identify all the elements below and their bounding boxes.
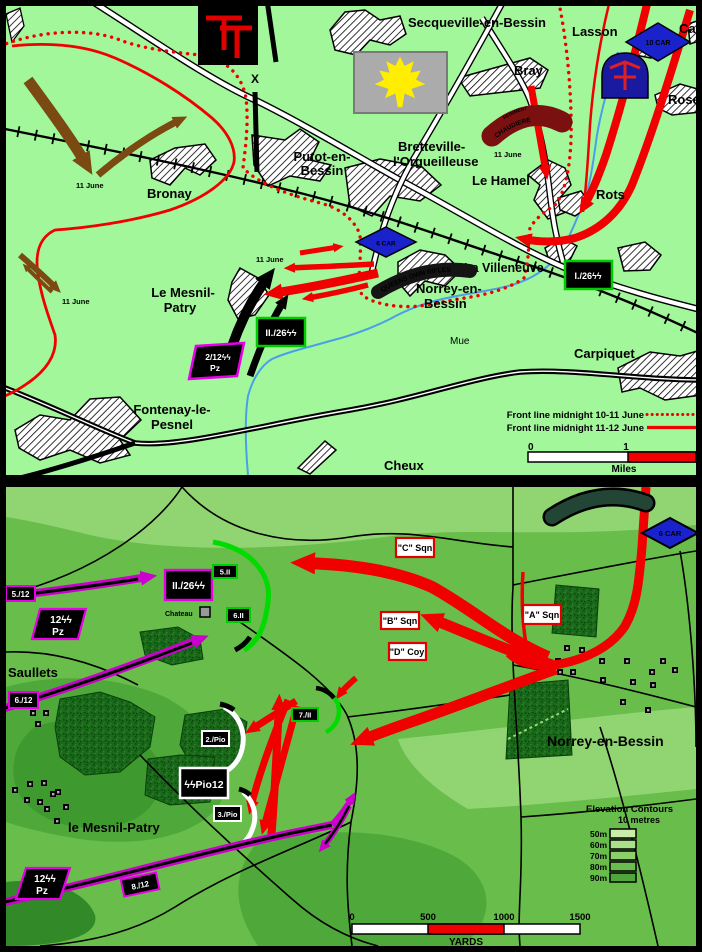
unit-12pz-bot-1: 12ϟϟ bbox=[34, 874, 56, 885]
badge-rm-commando-shield bbox=[602, 53, 648, 98]
hitlerjugend-insignia bbox=[198, 3, 258, 65]
elevation-swatch-70m bbox=[610, 851, 636, 860]
scale-yards-0: 0 bbox=[349, 912, 354, 923]
label-le-hamel: Le Hamel bbox=[472, 173, 530, 188]
label-norrey-1: Norrey-en- bbox=[416, 281, 482, 296]
label-mesnil-2: Patry bbox=[164, 300, 197, 315]
elevation-swatch-60m bbox=[610, 840, 636, 849]
label-norrey-en-bessin: Norrey-en-Bessin bbox=[547, 733, 664, 749]
scale-yards-500: 500 bbox=[420, 912, 436, 923]
label-le-mesnil-patry: le Mesnil-Patry bbox=[68, 820, 161, 835]
badge-10car-label: 10 CAR bbox=[646, 40, 671, 47]
unit-label-2-12ss: 2/12ϟϟ bbox=[205, 352, 231, 362]
label-bretteville-2: l'Orgueilleuse bbox=[393, 154, 478, 169]
unit-5-12: 5./12 bbox=[12, 590, 30, 599]
scale-miles-label: Miles bbox=[611, 464, 636, 475]
unit-label-2-12ss-pz: Pz bbox=[210, 363, 220, 373]
battle-map-page: Secqueville-en-Bessin Lasson Ca Bray Ros… bbox=[0, 0, 702, 952]
badge-6car-bottom-label: 6 CAR bbox=[659, 529, 682, 538]
unit-2-pio: 2./Pio bbox=[205, 735, 225, 744]
unit-12pz-bot-2: Pz bbox=[36, 886, 48, 897]
date-11june-4: 11 June bbox=[494, 150, 522, 159]
label-d-coy: "D" Coy bbox=[390, 647, 425, 657]
label-a-sqn: "A" Sqn bbox=[525, 610, 560, 620]
label-putot-1: Putot-en- bbox=[293, 149, 350, 164]
elevation-title: Elevation Contours bbox=[586, 804, 673, 815]
elevation-swatch-90m bbox=[610, 873, 636, 882]
label-secqueville: Secqueville-en-Bessin bbox=[408, 15, 546, 30]
unit-label-i-26ss: I./26ϟϟ bbox=[574, 271, 601, 281]
label-fontenay-2: Pesnel bbox=[151, 417, 193, 432]
label-mesnil-1: Le Mesnil- bbox=[151, 285, 215, 300]
label-fontenay-1: Fontenay-le- bbox=[133, 402, 210, 417]
unit-12pz-top-2: Pz bbox=[52, 627, 64, 638]
elevation-label-50m: 50m bbox=[590, 829, 607, 839]
elevation-label-80m: 80m bbox=[590, 862, 607, 872]
elevation-subtitle: 10 metres bbox=[618, 815, 660, 825]
label-rosel: Rose bbox=[668, 92, 700, 107]
date-11june-3: 11 June bbox=[256, 255, 284, 264]
unit-5-ii: 5.II bbox=[220, 568, 230, 577]
canadian-3div-maple-leaf-badge bbox=[354, 52, 447, 113]
badge-6car-top-label: 6 CAR bbox=[376, 241, 396, 248]
unit-6-ii: 6.II bbox=[233, 611, 243, 620]
chateau-building bbox=[200, 607, 210, 617]
label-bronay: Bronay bbox=[147, 186, 193, 201]
unit-6-12: 6./12 bbox=[15, 696, 33, 705]
label-boundary-x: X bbox=[251, 72, 259, 86]
date-11june-1: 11 June bbox=[76, 181, 104, 190]
elevation-label-60m: 60m bbox=[590, 840, 607, 850]
label-lasson: Lasson bbox=[572, 24, 618, 39]
label-bretteville-1: Bretteville- bbox=[398, 139, 465, 154]
legend-solid-label: Front line midnight 11-12 June bbox=[507, 423, 644, 434]
label-carpiquet: Carpiquet bbox=[574, 346, 635, 361]
date-11june-2: 11 June bbox=[62, 297, 90, 306]
label-bray: Bray bbox=[514, 63, 544, 78]
elevation-swatch-80m bbox=[610, 862, 636, 871]
label-norrey-2: Bessin bbox=[424, 296, 467, 311]
unit-ss-pio-12: ϟϟPio12 bbox=[184, 779, 223, 791]
label-b-sqn: "B" Sqn bbox=[383, 616, 418, 626]
unit-marker-ii-26ss: II./26ϟϟ bbox=[257, 318, 305, 346]
scale-yards-1500: 1500 bbox=[569, 912, 590, 923]
unit-label-ii-26ss: II./26ϟϟ bbox=[265, 328, 296, 339]
unit-7-ii: 7./II bbox=[299, 711, 312, 720]
elevation-swatch-50m bbox=[610, 829, 636, 838]
label-river-mue: Mue bbox=[450, 336, 470, 347]
unit-12pz-top-1: 12ϟϟ bbox=[50, 615, 72, 626]
unit-marker-2-12ss-pz: 2/12ϟϟ Pz bbox=[189, 343, 244, 379]
elevation-label-70m: 70m bbox=[590, 851, 607, 861]
label-cheux: Cheux bbox=[384, 458, 425, 473]
label-saullets: Saullets bbox=[8, 665, 58, 680]
unit-marker-i-26ss: I./26ϟϟ bbox=[565, 261, 612, 289]
scale-yards-1000: 1000 bbox=[493, 912, 514, 923]
detail-map: Saullets le Mesnil-Patry Norrey-en-Bessi… bbox=[0, 480, 702, 952]
label-putot-2: Bessin bbox=[301, 163, 344, 178]
elevation-label-90m: 90m bbox=[590, 873, 607, 883]
legend-dotted-label: Front line midnight 10-11 June bbox=[507, 410, 644, 421]
overview-map: Secqueville-en-Bessin Lasson Ca Bray Ros… bbox=[0, 0, 702, 480]
label-cairon: Ca bbox=[679, 21, 696, 36]
unit-ii-26: II./26ϟϟ bbox=[172, 581, 206, 592]
label-rots: Rots bbox=[596, 187, 625, 202]
unit-3-pio: 3./Pio bbox=[217, 810, 237, 819]
label-c-sqn: "C" Sqn bbox=[398, 543, 433, 553]
label-chateau: Chateau bbox=[165, 611, 193, 618]
